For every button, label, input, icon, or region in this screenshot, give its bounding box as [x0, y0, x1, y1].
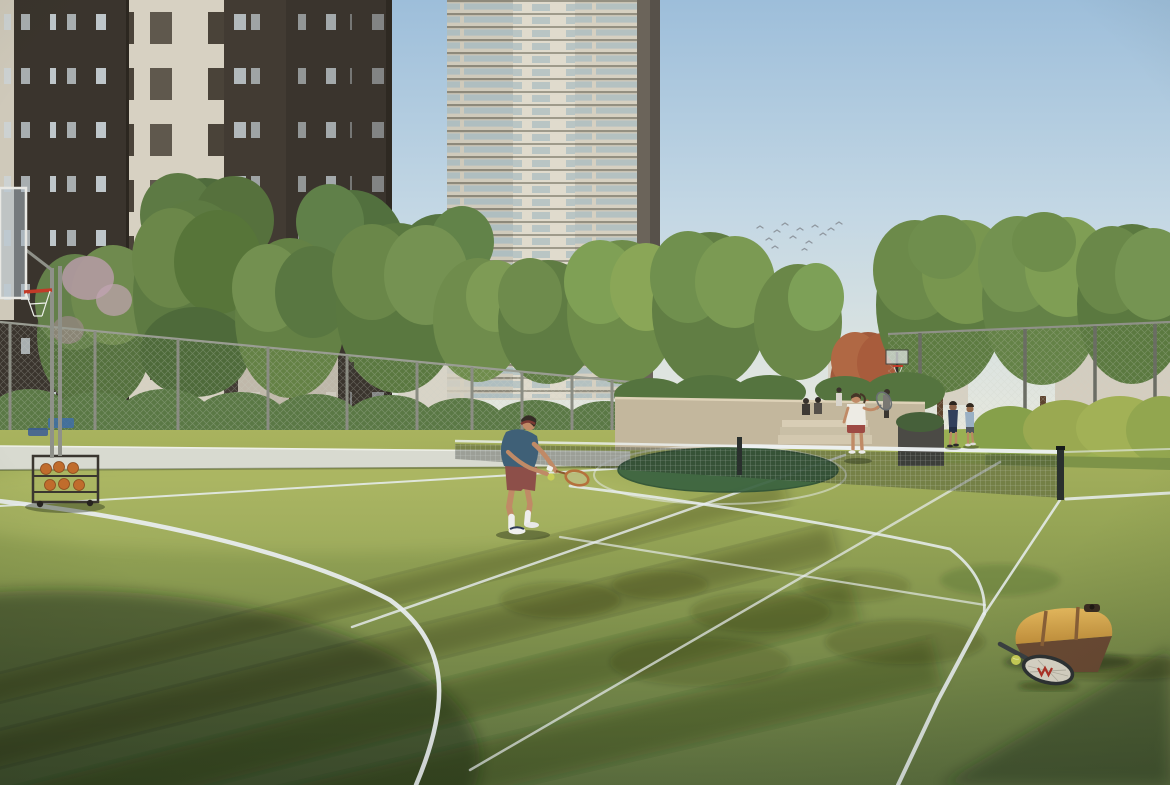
vignette — [0, 0, 1170, 785]
scene-svg: Architectural rendering: outdoor multi-s… — [0, 0, 1170, 785]
render-image: Architectural rendering: outdoor multi-s… — [0, 0, 1170, 785]
